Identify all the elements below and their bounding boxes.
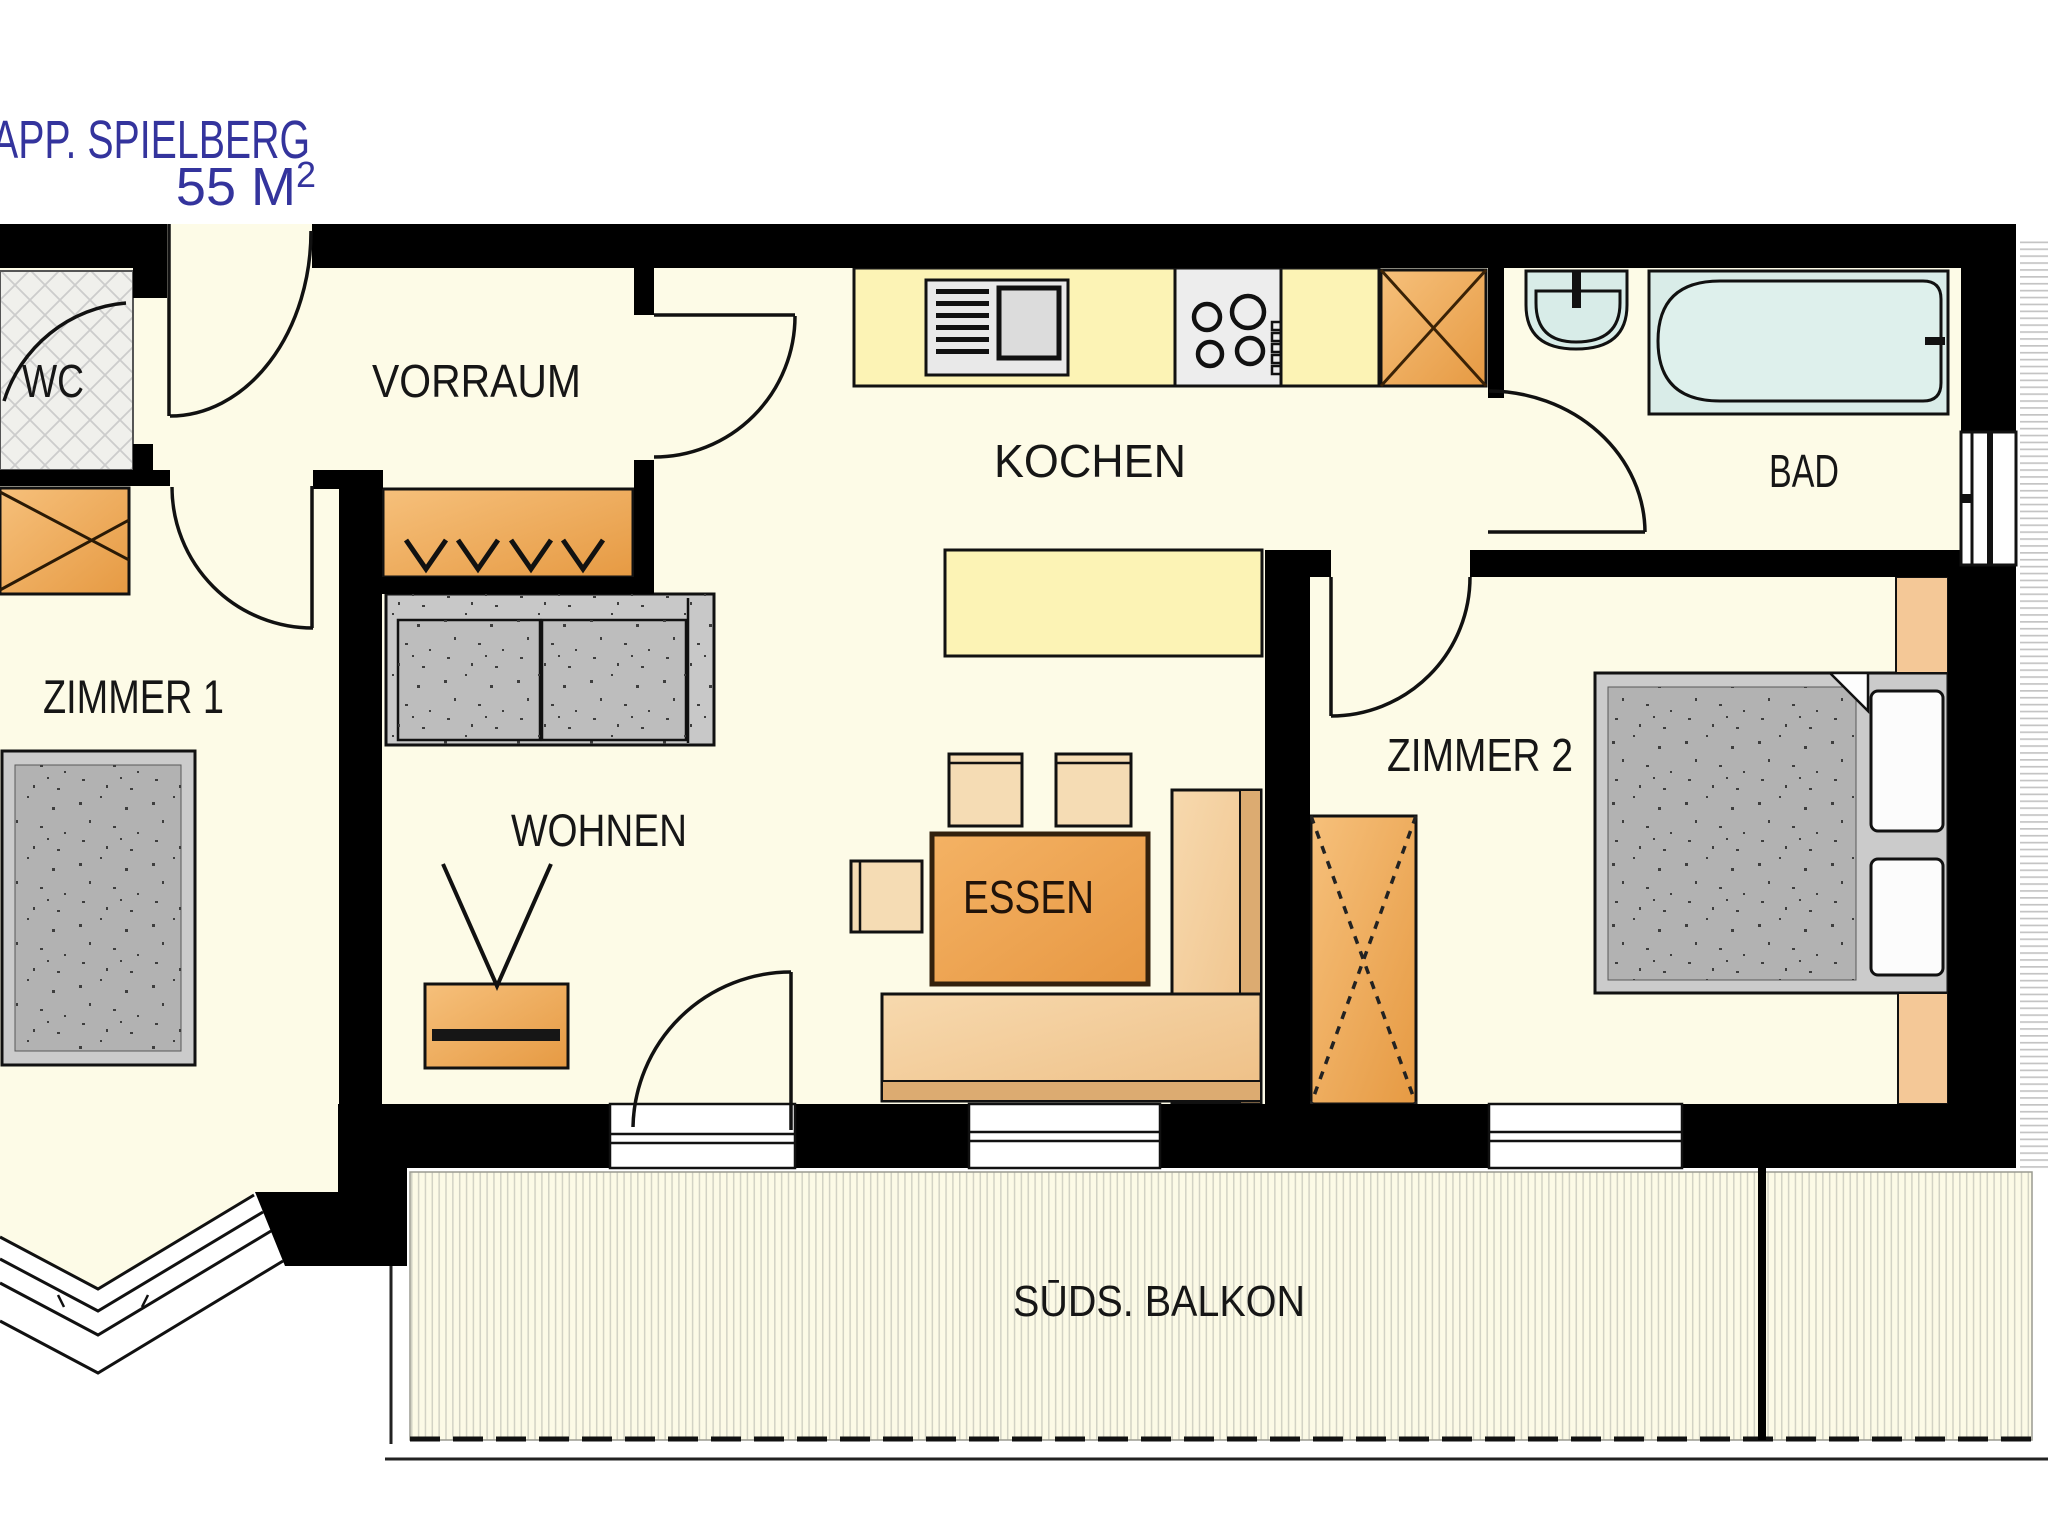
svg-text:WC: WC: [22, 355, 84, 407]
svg-text:55 M2: 55 M2: [176, 154, 316, 217]
svg-text:WOHNEN: WOHNEN: [511, 805, 687, 856]
svg-text:SŪDS. BALKON: SŪDS. BALKON: [1013, 1277, 1305, 1326]
svg-text:ESSEN: ESSEN: [963, 871, 1094, 923]
svg-text:BAD: BAD: [1769, 445, 1839, 497]
svg-text:ZIMMER 2: ZIMMER 2: [1387, 729, 1573, 781]
svg-text:KOCHEN: KOCHEN: [994, 435, 1186, 487]
svg-text:VORRAUM: VORRAUM: [372, 355, 581, 407]
svg-text:ZIMMER 1: ZIMMER 1: [43, 670, 224, 723]
